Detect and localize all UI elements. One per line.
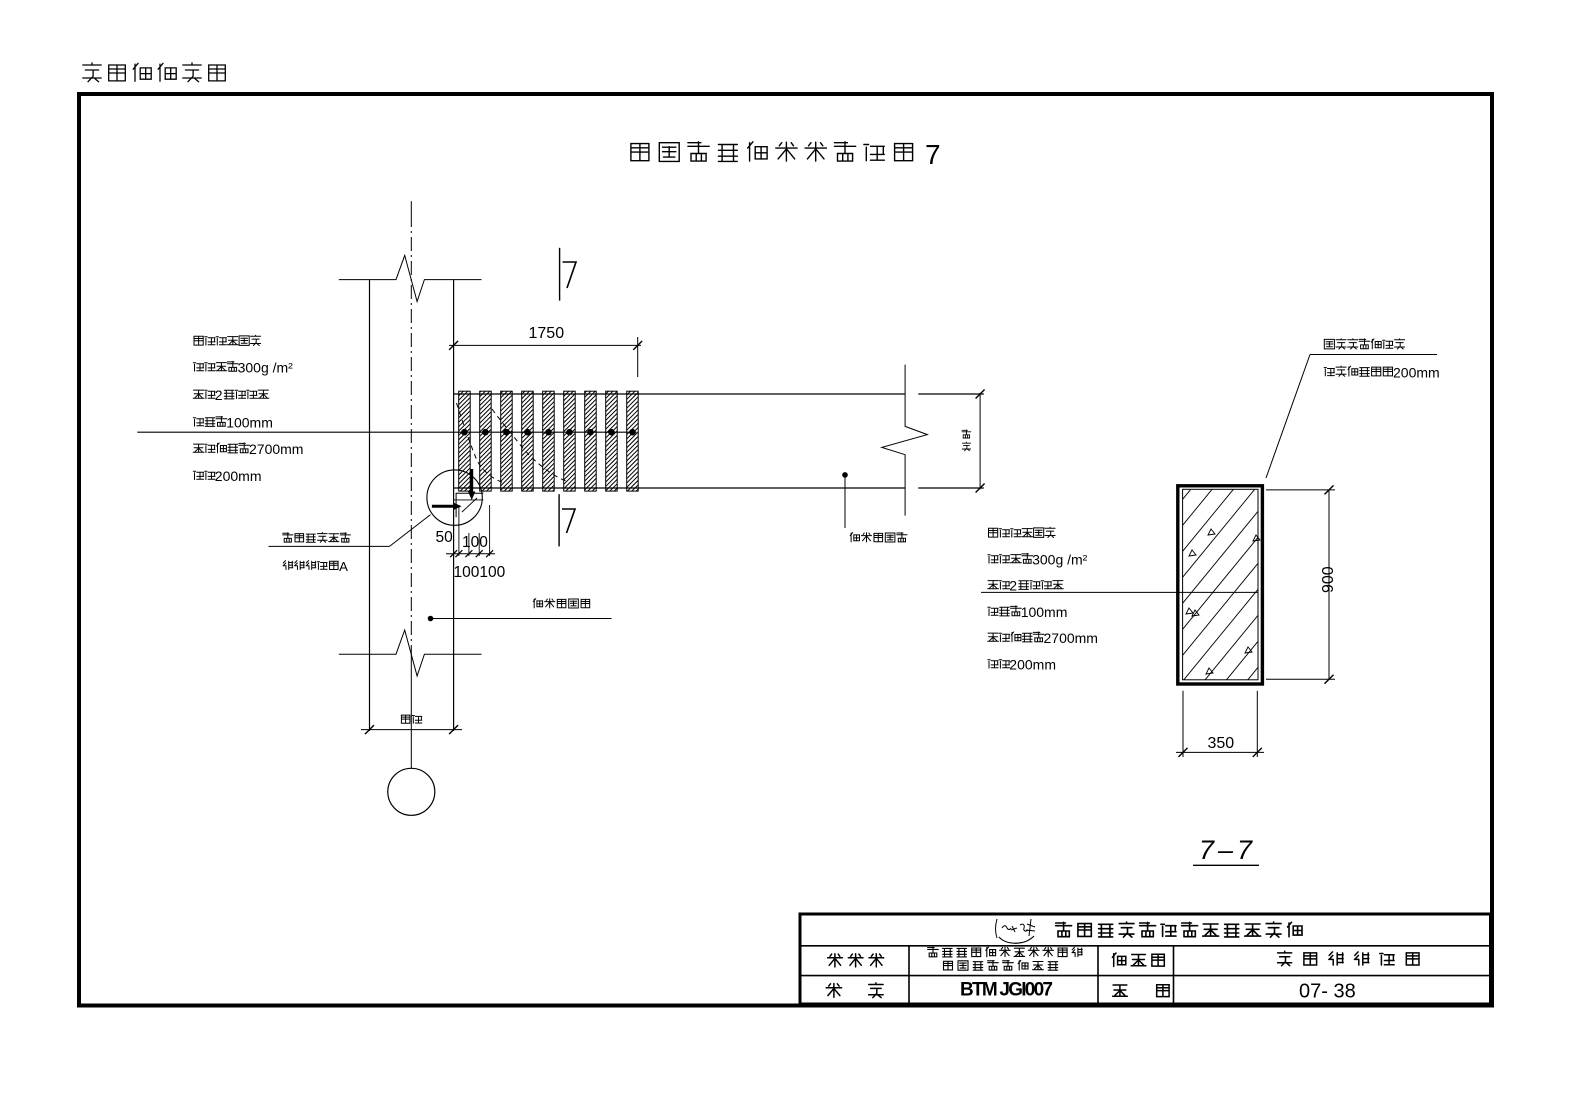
svg-text:300g /m²: 300g /m²	[1032, 552, 1088, 568]
svg-text:2700mm: 2700mm	[249, 441, 303, 457]
svg-text:07- 38: 07- 38	[1299, 981, 1356, 1003]
svg-text:50: 50	[436, 529, 454, 546]
svg-text:2700mm: 2700mm	[1044, 630, 1098, 646]
svg-text:2: 2	[1009, 578, 1017, 594]
svg-text:2: 2	[215, 387, 223, 403]
svg-text:200mm: 200mm	[1009, 657, 1056, 673]
svg-text:100mm: 100mm	[1021, 604, 1068, 620]
svg-text:200mm: 200mm	[1393, 364, 1440, 380]
svg-text:100: 100	[462, 534, 488, 551]
svg-text:7–7: 7–7	[1199, 835, 1256, 865]
svg-text:900: 900	[1320, 566, 1337, 593]
svg-text:100mm: 100mm	[226, 415, 273, 431]
svg-text:7: 7	[925, 139, 941, 170]
svg-text:300g /m²: 300g /m²	[238, 360, 294, 376]
svg-text:BTM JGI007: BTM JGI007	[960, 980, 1053, 1001]
svg-text:350: 350	[1208, 735, 1235, 752]
svg-text:100100: 100100	[454, 564, 506, 581]
svg-text:200mm: 200mm	[215, 468, 262, 484]
svg-text:1750: 1750	[529, 325, 565, 342]
svg-text:A: A	[339, 559, 348, 574]
